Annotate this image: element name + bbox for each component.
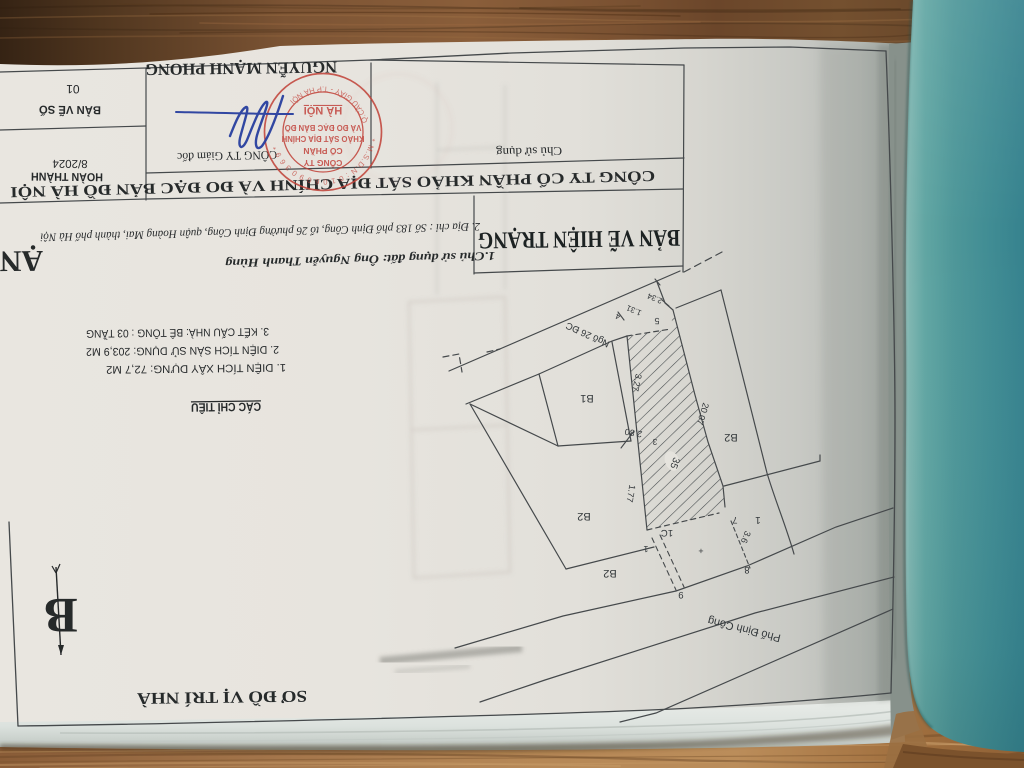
svg-text:CÔNG TY Giám đốc: CÔNG TY Giám đốc (177, 148, 277, 164)
svg-text:5: 5 (654, 316, 659, 326)
svg-text:VÀ ĐO ĐẠC BẢN ĐỒ: VÀ ĐO ĐẠC BẢN ĐỒ (285, 123, 362, 133)
svg-text:CÔNG TY: CÔNG TY (303, 158, 342, 169)
svg-text:1C: 1C (661, 527, 673, 538)
svg-text:BẢN VẼ SỐ: BẢN VẼ SỐ (39, 103, 101, 118)
svg-text:SƠ ĐỒ VỊ TRÍ NHÀ: SƠ ĐỒ VỊ TRÍ NHÀ (137, 687, 307, 709)
svg-text:7: 7 (732, 514, 737, 525)
svg-text:1: 1 (755, 514, 761, 525)
svg-text:B: B (44, 588, 77, 644)
svg-text:3. KẾT CẤU NHÀ: BÊ TÔNG : 03 T: 3. KẾT CẤU NHÀ: BÊ TÔNG : 03 TẦNG (86, 325, 269, 340)
svg-text:8: 8 (744, 564, 749, 575)
svg-text:BẢN VẼ HIỆN TRẠNG: BẢN VẼ HIỆN TRẠNG (478, 224, 681, 253)
svg-text:ẠNG: ẠNG (0, 244, 43, 278)
svg-text:8/2024: 8/2024 (52, 157, 88, 169)
svg-text:9: 9 (678, 589, 683, 600)
svg-text:2. DIỆN TÍCH SÀN SỬ DỤNG: 203,: 2. DIỆN TÍCH SÀN SỬ DỤNG: 203,9 M2 (86, 343, 279, 358)
svg-text:1. DIỆN TÍCH XÂY DỰNG: 72,7 M: 1. DIỆN TÍCH XÂY DỰNG: 72,7 M2 (106, 361, 286, 376)
svg-text:01: 01 (66, 82, 80, 96)
svg-text:+: + (698, 546, 703, 556)
svg-text:B2: B2 (577, 510, 591, 522)
svg-text:3: 3 (652, 437, 657, 447)
svg-text:CÁC CHỈ TIÊU: CÁC CHỈ TIÊU (191, 400, 261, 416)
svg-text:HÀ NỘI: HÀ NỘI (304, 104, 343, 117)
svg-text:KHẢO SÁT ĐỊA CHÍNH: KHẢO SÁT ĐỊA CHÍNH (281, 134, 364, 143)
svg-text:B1: B1 (580, 392, 594, 404)
svg-text:Chủ sử dụng: Chủ sử dụng (496, 144, 562, 159)
svg-text:1: 1 (643, 544, 648, 554)
svg-text:B2: B2 (603, 567, 617, 579)
svg-text:B2: B2 (724, 431, 738, 443)
svg-text:CỔ PHẦN: CỔ PHẦN (303, 146, 342, 157)
